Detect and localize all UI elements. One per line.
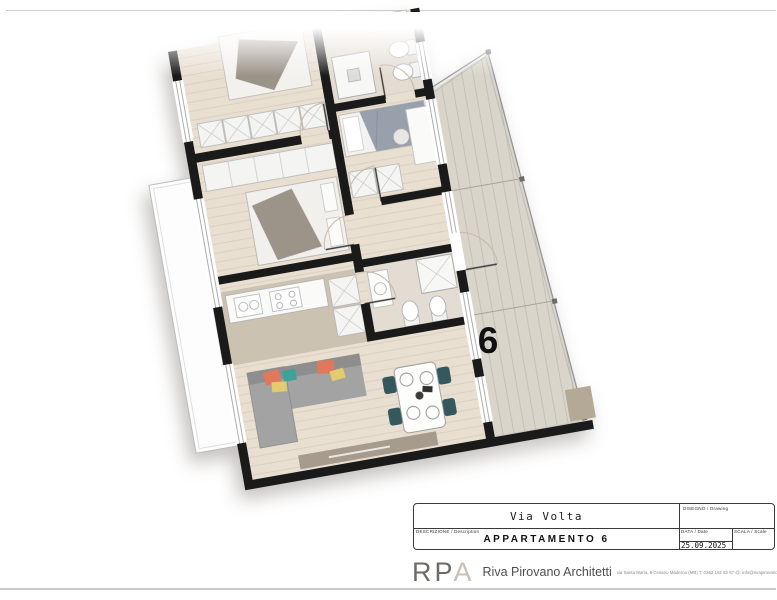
unit-number: 6 [478,320,499,361]
date-value: 25.09.2025 [681,541,726,550]
rpa-logo: RPA [412,559,475,586]
sheet-bottom-border [0,588,776,590]
title-block-divider [732,528,733,549]
title-block-divider [679,504,680,549]
drawing-title-cell: Via Volta [414,504,679,528]
master-bed [246,177,349,266]
title-block: Via Volta DISEGNO / Drawing DESCRIZIONE … [413,503,775,550]
drawing-title: Via Volta [510,510,583,523]
sink [234,294,263,318]
drawing-sheet: 6 Via Volta DISEGNO / Drawing DESCRIZION… [0,0,777,600]
firm-name: Riva Pirovano Architetti [483,565,612,579]
bedroom1-bed [218,22,312,100]
rpa-logo-rp: RP [412,557,454,587]
adjacent-structure [565,386,596,422]
rpa-logo-a: A [454,557,475,587]
apartment-title: APPARTAMENTO 6 [483,534,609,545]
data-label: DATA / Date [681,529,708,534]
firm-row: RPA Riva Pirovano Architetti via Santa M… [412,556,776,588]
firm-contact: via Santa Maria, 9 Cesano Maderno (MB) T… [617,570,777,575]
disegno-label: DISEGNO / Drawing [681,505,777,527]
description-cell: APPARTAMENTO 6 [414,528,679,551]
scala-label: SCALA / Scale [734,529,767,534]
